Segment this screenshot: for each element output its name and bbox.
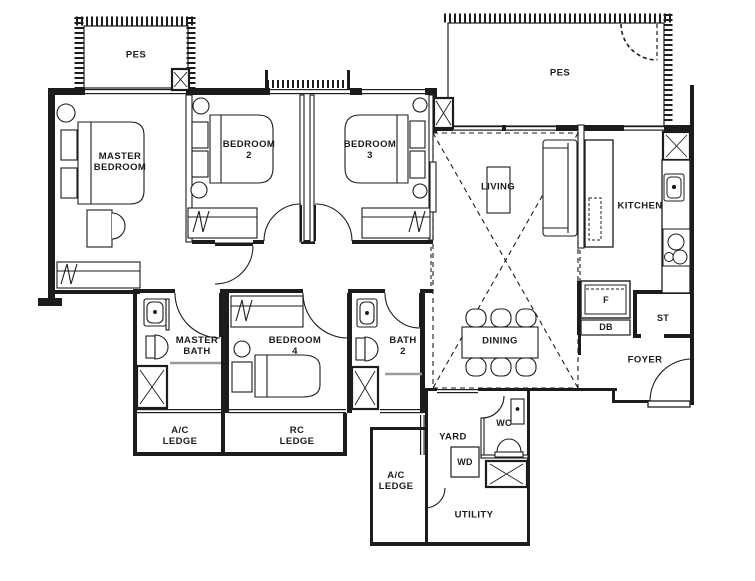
nightstand-icon xyxy=(410,121,425,148)
wc-toilet-icon xyxy=(495,439,523,457)
wardrobe-icon xyxy=(231,296,303,327)
single-bed-icon xyxy=(255,355,320,397)
nightstand-icon xyxy=(192,122,208,148)
cooker-hob-icon xyxy=(663,229,690,266)
ac-unit-bedroom3-icon xyxy=(434,98,453,128)
sofa-icon xyxy=(543,140,577,236)
ac-unit-kitchen-icon xyxy=(663,132,690,160)
toilet-icon xyxy=(146,335,168,359)
dressing-table-icon xyxy=(87,210,125,247)
wc-basin-icon xyxy=(511,399,524,424)
coffee-table-icon xyxy=(487,167,510,213)
dining-table-icon xyxy=(462,327,538,358)
nightstand-icon xyxy=(232,362,252,392)
dining-chair-icon xyxy=(466,309,486,327)
kitchen-sink-icon xyxy=(664,174,684,201)
main-entrance-door-icon xyxy=(648,359,692,407)
dishwasher-icon xyxy=(589,198,601,240)
wardrobe-icon xyxy=(57,262,140,288)
lamp-icon xyxy=(57,104,75,122)
master-bath-fixtures xyxy=(144,299,221,363)
wc-door-icon xyxy=(482,396,504,418)
double-bed-icon xyxy=(210,115,273,183)
bedroom3-door-icon xyxy=(315,204,352,241)
lamp-icon xyxy=(193,98,209,114)
tv-console-icon xyxy=(430,162,436,212)
bedroom2-door-icon xyxy=(264,204,301,241)
master-bath-door-icon xyxy=(175,293,220,338)
wardrobe-icon xyxy=(188,208,257,238)
bedroom4-door-icon xyxy=(303,293,348,338)
double-bed-icon xyxy=(345,115,408,183)
dining-chair-icon xyxy=(516,358,536,376)
nightstand-icon xyxy=(61,168,77,198)
master-bedroom-door-icon xyxy=(215,243,253,285)
pes-hatch-bands xyxy=(76,14,672,126)
floor-plan-drawing xyxy=(0,0,755,581)
double-bed-icon xyxy=(78,122,144,204)
lamp-icon xyxy=(234,341,250,357)
nightstand-icon xyxy=(192,151,208,177)
dining-chair-icon xyxy=(491,309,511,327)
ac-unit-yard-icon xyxy=(486,461,527,487)
fridge-icon xyxy=(581,281,630,318)
nightstand-icon xyxy=(410,151,425,178)
lamp-icon xyxy=(191,182,207,198)
wardrobe-icon xyxy=(362,208,430,238)
lamp-icon xyxy=(413,184,427,198)
toilet-icon xyxy=(356,337,378,361)
master-bedroom-furniture xyxy=(57,104,144,288)
floor-plan: PES PES MASTER BEDROOM BEDROOM 2 BEDROOM… xyxy=(0,0,755,581)
ac-unit-bath2-icon xyxy=(352,367,378,409)
dining-chair-icon xyxy=(466,358,486,376)
living-furniture xyxy=(430,140,577,236)
ac-unit-pes-left-icon xyxy=(172,69,189,90)
lamp-icon xyxy=(413,98,427,112)
db-box xyxy=(581,320,630,335)
bath2-door-icon xyxy=(385,293,420,328)
bedroom2-furniture xyxy=(188,98,273,238)
bedroom3-furniture xyxy=(345,98,430,238)
dining-chair-icon xyxy=(491,358,511,376)
dining-chair-icon xyxy=(516,309,536,327)
pes-gate-icon xyxy=(621,24,657,60)
ac-unit-master-bath-icon xyxy=(137,366,167,408)
washer-dryer-icon xyxy=(451,447,479,477)
dining-furniture xyxy=(462,309,538,376)
nightstand-icon xyxy=(61,130,77,160)
